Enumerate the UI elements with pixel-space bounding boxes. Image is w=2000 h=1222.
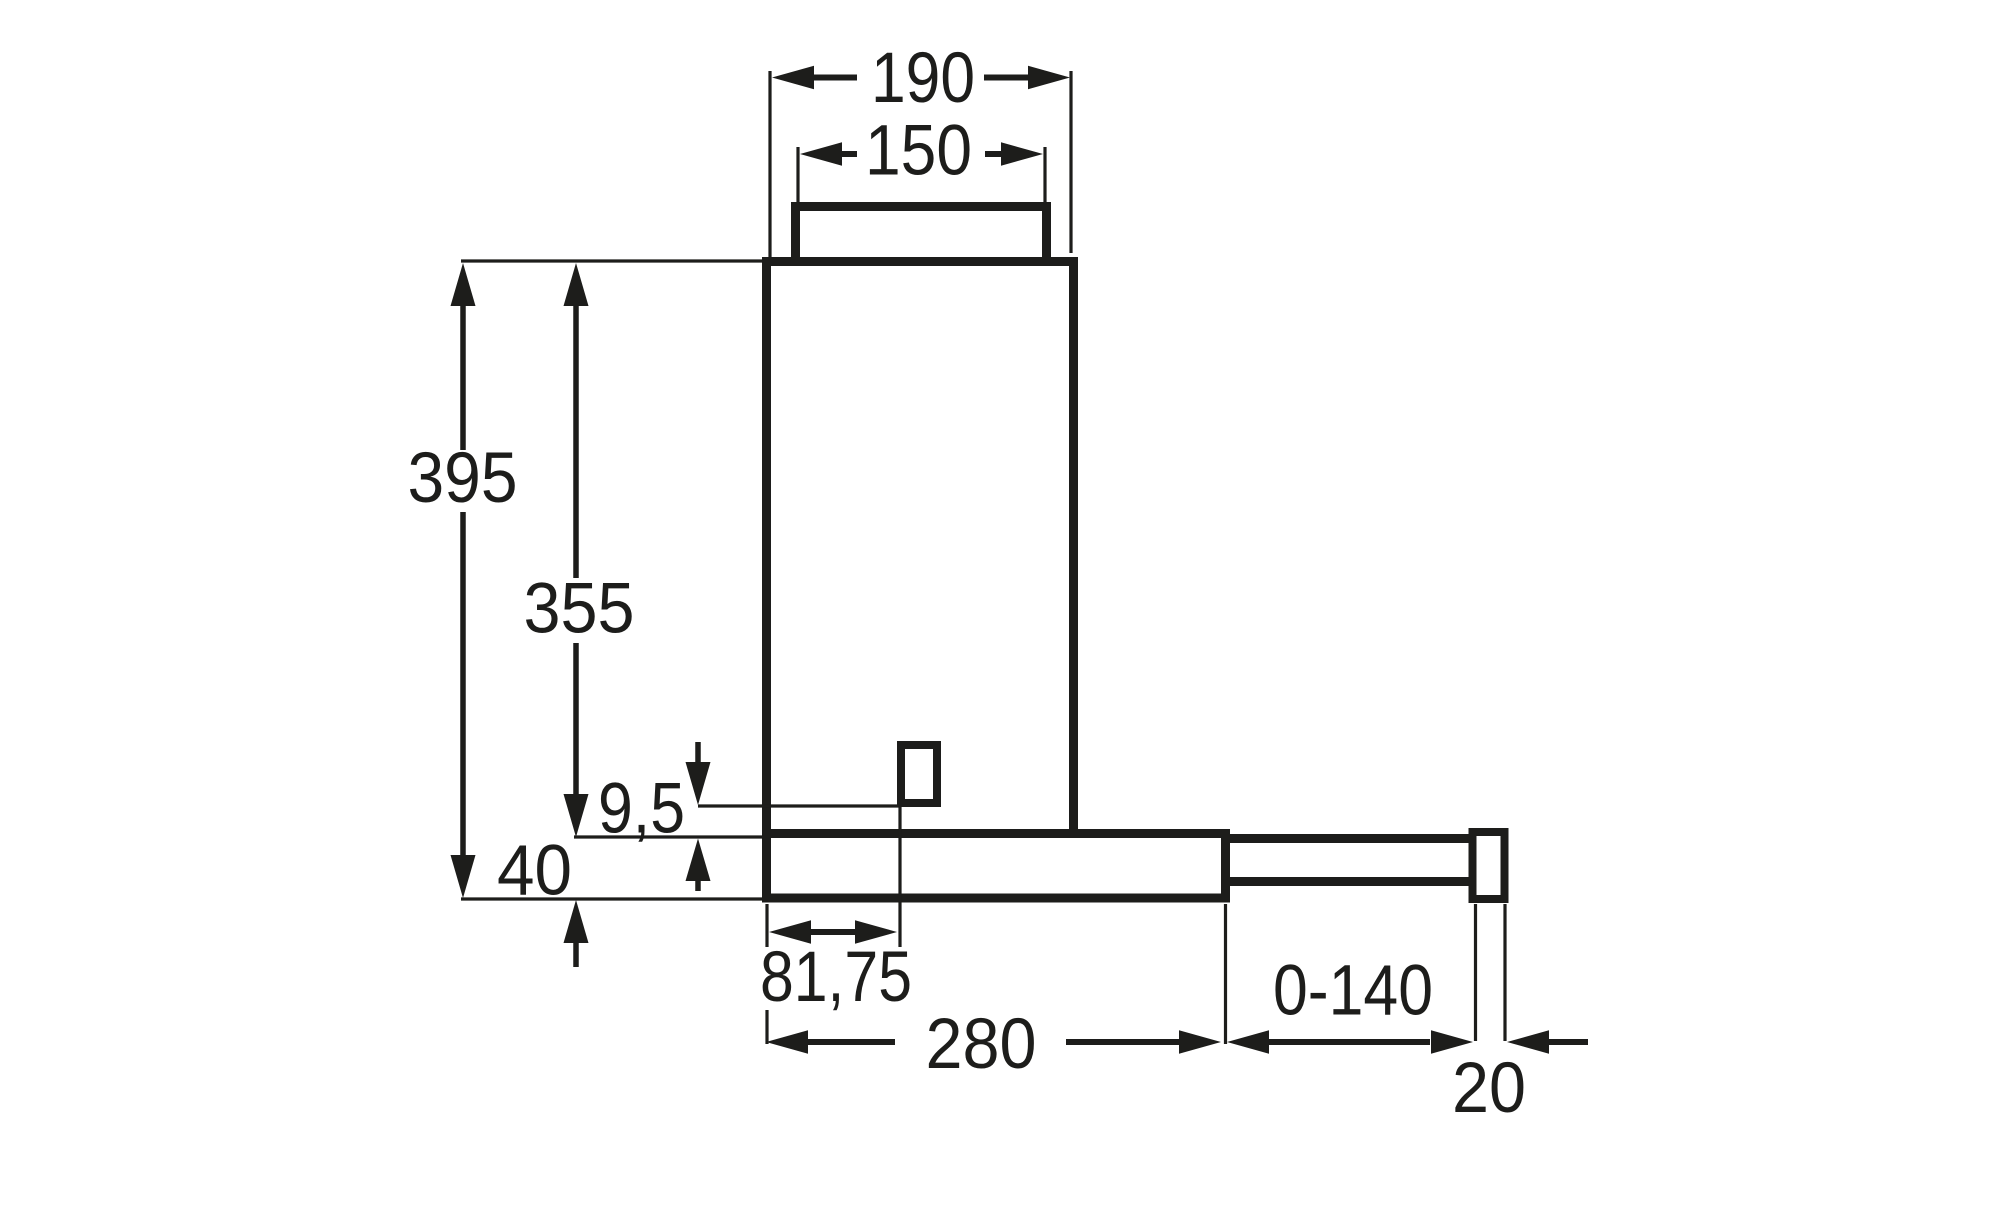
svg-text:150: 150: [865, 112, 972, 191]
svg-text:280: 280: [926, 1005, 1037, 1084]
svg-text:0-140: 0-140: [1273, 952, 1433, 1031]
svg-text:81,75: 81,75: [760, 938, 912, 1017]
svg-text:190: 190: [871, 39, 975, 118]
svg-text:9,5: 9,5: [598, 770, 685, 849]
svg-text:40: 40: [497, 832, 572, 911]
svg-text:355: 355: [524, 570, 635, 649]
svg-text:20: 20: [1452, 1049, 1526, 1128]
svg-text:395: 395: [408, 439, 518, 518]
